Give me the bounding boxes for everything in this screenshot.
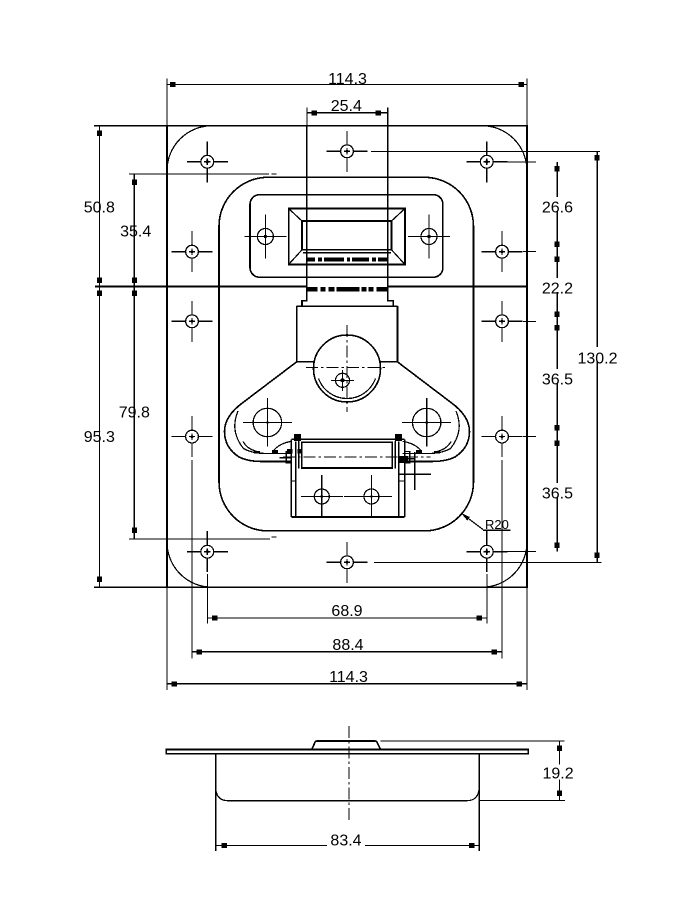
svg-text:79.8: 79.8 <box>119 404 150 421</box>
svg-text:22.2: 22.2 <box>542 281 573 298</box>
svg-text:114.3: 114.3 <box>329 669 368 686</box>
svg-text:68.9: 68.9 <box>331 603 362 620</box>
svg-text:19.2: 19.2 <box>543 766 574 783</box>
svg-text:95.3: 95.3 <box>84 429 115 446</box>
svg-text:83.4: 83.4 <box>330 833 361 850</box>
svg-text:35.4: 35.4 <box>120 224 151 241</box>
svg-text:36.5: 36.5 <box>542 372 573 389</box>
svg-text:36.5: 36.5 <box>542 486 573 503</box>
svg-text:114.3: 114.3 <box>328 71 367 88</box>
svg-text:R20: R20 <box>485 517 509 532</box>
svg-text:26.6: 26.6 <box>542 200 573 217</box>
svg-text:88.4: 88.4 <box>332 637 363 654</box>
svg-text:25.4: 25.4 <box>331 98 362 115</box>
svg-text:130.2: 130.2 <box>577 351 617 368</box>
svg-text:50.8: 50.8 <box>84 199 115 216</box>
